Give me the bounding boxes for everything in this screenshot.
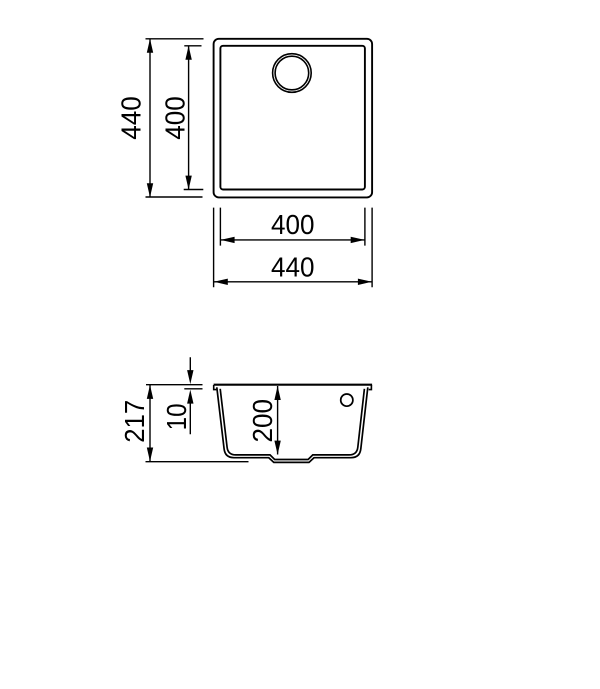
svg-text:400: 400 xyxy=(159,96,190,140)
svg-text:440: 440 xyxy=(116,96,147,140)
svg-text:400: 400 xyxy=(271,209,315,240)
svg-text:440: 440 xyxy=(271,251,315,282)
svg-text:217: 217 xyxy=(119,400,150,443)
svg-text:10: 10 xyxy=(161,403,192,430)
svg-text:200: 200 xyxy=(247,399,278,443)
